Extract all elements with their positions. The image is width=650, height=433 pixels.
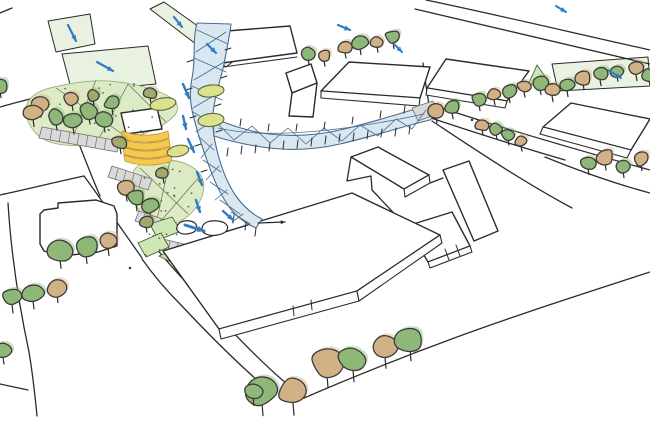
lawn-dot: [187, 206, 189, 208]
lawn-dot: [115, 115, 117, 117]
tree-canopy-blob: [475, 120, 489, 130]
tree-canopy-blob: [245, 384, 263, 398]
canopy-post: [240, 119, 241, 126]
canopy-post: [187, 60, 193, 62]
tree-canopy-blob: [445, 101, 459, 114]
tree-canopy-blob: [47, 240, 73, 261]
lawn-dot: [108, 129, 110, 131]
lawn-dot: [166, 233, 168, 235]
canopy-post: [227, 148, 228, 156]
tree-canopy-blob: [428, 104, 444, 119]
lawn-dot: [140, 130, 142, 132]
tree-canopy-blob: [596, 150, 612, 165]
tree-canopy-blob: [352, 36, 369, 50]
tree-canopy-blob: [76, 237, 97, 257]
street-corner-tick: [0, 8, 12, 13]
tree-trunk: [3, 357, 4, 364]
tree-trunk: [12, 305, 13, 313]
tree-canopy-blob: [503, 85, 517, 98]
lawn-dot: [159, 183, 161, 185]
canopy-post: [241, 146, 242, 154]
lawn-dot: [174, 187, 176, 189]
tree-canopy-blob: [279, 378, 306, 402]
lawn-dot: [94, 122, 96, 124]
lawn-dot: [191, 192, 193, 194]
canopy-post: [324, 122, 325, 129]
site-sketch-svg: [0, 0, 650, 433]
lawn-dot: [167, 192, 169, 194]
lawn-dot: [64, 88, 66, 90]
tree-canopy-blob: [140, 216, 154, 227]
street-topright-1: [415, 9, 650, 64]
tree-trunk: [567, 91, 568, 97]
tree-canopy-blob: [319, 50, 330, 61]
tree-trunk: [385, 358, 386, 369]
ink-dot: [471, 119, 473, 121]
tree-canopy-blob: [0, 79, 7, 93]
canopy-post: [221, 76, 227, 78]
tree-canopy-blob: [95, 112, 112, 127]
tree-canopy-blob: [47, 280, 67, 298]
lawn-dot: [151, 116, 153, 118]
canopy-post: [296, 124, 297, 131]
tree-trunk: [552, 96, 553, 102]
tree-trunk: [293, 403, 294, 415]
street-topright-2: [426, 0, 650, 50]
tree-canopy-blob: [575, 71, 590, 85]
canopy-post: [215, 104, 221, 106]
tree-canopy-blob: [394, 328, 421, 351]
tree-canopy-blob: [472, 93, 486, 106]
lawn-dot: [144, 177, 146, 179]
canopy-post: [195, 144, 201, 146]
tree-canopy-blob: [545, 84, 560, 96]
tree-canopy-blob: [156, 168, 168, 178]
tree-canopy-blob: [63, 114, 82, 128]
tree-canopy-blob: [629, 62, 644, 75]
tree-trunk: [353, 371, 354, 382]
lawn-dot: [142, 131, 144, 133]
lawn-dot: [138, 110, 140, 112]
lawn-dot: [160, 210, 162, 212]
canopy-post: [352, 117, 353, 124]
tree-canopy-blob: [370, 37, 383, 48]
pond: [177, 221, 228, 236]
tree-canopy-blob: [560, 79, 575, 91]
lawn-dot: [102, 92, 104, 94]
lawn-dot: [160, 253, 162, 255]
tree-canopy-blob: [385, 31, 399, 43]
yellow-building-roof: [121, 108, 162, 134]
tree-trunk: [345, 53, 346, 58]
ink-dot: [129, 267, 131, 269]
street-left-cross: [0, 384, 28, 390]
canopy-post: [201, 170, 207, 172]
tree-canopy-blob: [301, 47, 315, 60]
lawn-dot: [149, 233, 151, 235]
canopy-horizontal-band: [213, 106, 433, 149]
tree-canopy-blob: [143, 88, 156, 99]
lawn-dot: [179, 170, 181, 172]
lawn-dot: [133, 83, 135, 85]
sketch-canvas: [0, 0, 650, 433]
tree-canopy-blob: [501, 130, 514, 141]
lawn-dot: [59, 103, 61, 105]
lawn-dot: [159, 249, 161, 251]
lawn-dot: [109, 84, 111, 86]
lawn-dot: [128, 126, 130, 128]
tree-canopy-blob: [634, 152, 647, 166]
tree-canopy-blob: [581, 157, 597, 169]
courtyard-right-wall: [430, 178, 443, 183]
tree-canopy-blob: [594, 68, 608, 80]
tree-canopy-blob: [487, 89, 500, 100]
lawn-dot: [176, 234, 178, 236]
lawn-dot: [98, 87, 100, 89]
pond-basin-right: [202, 221, 228, 236]
tree-canopy-blob: [616, 160, 630, 173]
lawn-dot: [172, 168, 174, 170]
lawn-dot: [145, 254, 147, 256]
tree-canopy-blob: [517, 81, 531, 91]
lawn-dot: [132, 109, 134, 111]
tree-canopy-blob: [338, 42, 352, 53]
tree-canopy-blob: [100, 233, 117, 248]
lawn-dot: [165, 210, 167, 212]
lawn-dot: [152, 235, 154, 237]
tree-trunk: [524, 92, 525, 97]
tree-canopy-blob: [515, 136, 527, 146]
canopy-post: [380, 111, 381, 118]
lawn-dot: [161, 125, 163, 127]
tree-canopy-blob: [128, 190, 143, 204]
tree-canopy-blob: [22, 285, 45, 301]
lawn-dot: [173, 195, 175, 197]
street-left-3: [0, 176, 84, 195]
lawn-dot: [158, 237, 160, 239]
canopy-post: [268, 124, 269, 131]
lawn-dot: [133, 85, 135, 87]
